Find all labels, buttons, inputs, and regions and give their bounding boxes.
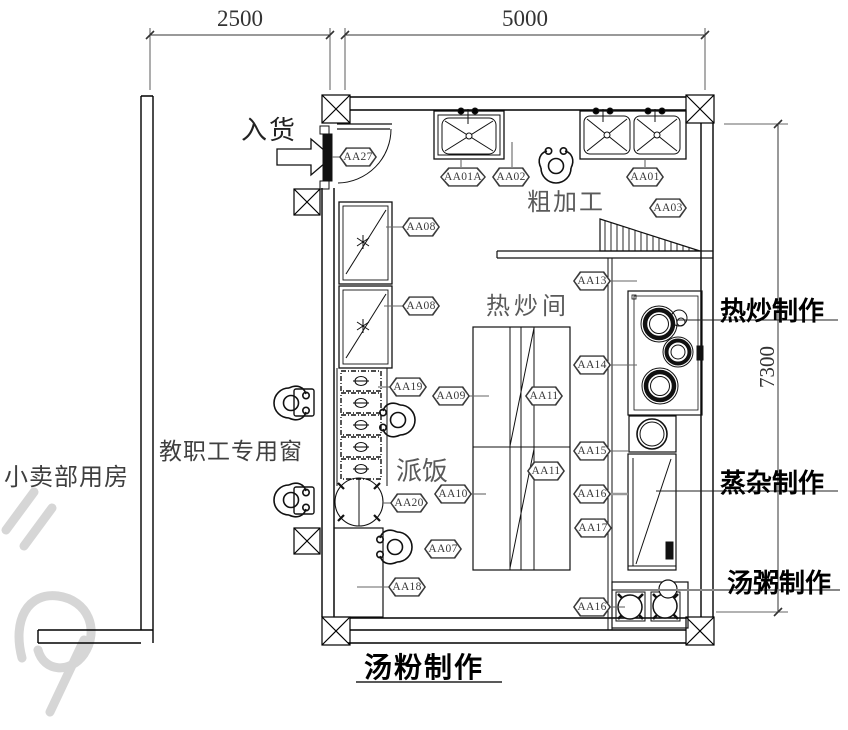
equipment-tag-aa15: AA15 [573, 441, 611, 461]
equipment-tag-aa03: AA03 [649, 198, 687, 218]
equipment-tag-aa11: AA11 [525, 386, 563, 406]
label-hot-fry-room: 热炒间 [486, 286, 570, 321]
center-work-table [473, 327, 570, 570]
label-shop-room: 小卖部用房 [4, 457, 129, 492]
equipment-tag-aa17: AA17 [574, 518, 612, 538]
equipment-tag-aa01a: AA01A [440, 167, 486, 187]
dimension-width-left: 2500 [150, 6, 330, 32]
floorplan-drawing [0, 0, 848, 730]
label-steam-production: 蒸杂制作 [720, 463, 824, 500]
steamer-cabinet [628, 454, 676, 570]
stairs-ramp [600, 219, 700, 251]
round-table [335, 478, 383, 526]
label-hot-fry-production: 热炒制作 [720, 291, 824, 328]
equipment-tag-aa08: AA08 [402, 217, 440, 237]
dimension-width-main: 5000 [345, 6, 705, 32]
equipment-tag-aa07: AA07 [424, 539, 462, 559]
dimension-height-main: 7300 [755, 339, 777, 395]
equipment-tag-aa10: AA10 [434, 484, 472, 504]
porridge-stove [612, 580, 688, 628]
equipment-tag-aa20: AA20 [390, 493, 428, 513]
equipment-tag-aa09: AA09 [432, 386, 470, 406]
label-serve-rice: 派饭 [396, 451, 448, 488]
equipment-tag-aa16: AA16 [573, 484, 611, 504]
single-burner [629, 416, 676, 452]
equipment-tag-aa08: AA08 [402, 296, 440, 316]
label-staff-window: 教职工专用窗 [159, 432, 303, 466]
equipment-tag-aa13: AA13 [573, 271, 611, 291]
equipment-tag-aa19: AA19 [389, 377, 427, 397]
floorplan-canvas: 2500 5000 7300 入货 粗加工 热炒间 派饭 教职工专用窗 小卖部用… [0, 0, 848, 730]
wok-range [628, 291, 703, 415]
label-rough-processing: 粗加工 [527, 182, 605, 217]
equipment-tag-aa01: AA01 [626, 167, 664, 187]
label-incoming-goods: 入货 [241, 110, 297, 147]
equipment-tag-aa27: AA27 [339, 147, 377, 167]
lower-counter [334, 528, 383, 617]
watermark [6, 492, 91, 712]
label-noodle-soup-production: 汤粉制作 [364, 646, 484, 686]
shop-room-wall [38, 96, 153, 643]
label-porridge-production: 汤粥制作 [727, 563, 831, 600]
equipment-tag-aa16: AA16 [573, 597, 611, 617]
refrigerators [339, 202, 392, 368]
equipment-tag-aa18: AA18 [388, 577, 426, 597]
equipment-tag-aa11: AA11 [527, 461, 565, 481]
equipment-tag-aa14: AA14 [573, 355, 611, 375]
equipment-tag-aa02: AA02 [492, 167, 530, 187]
